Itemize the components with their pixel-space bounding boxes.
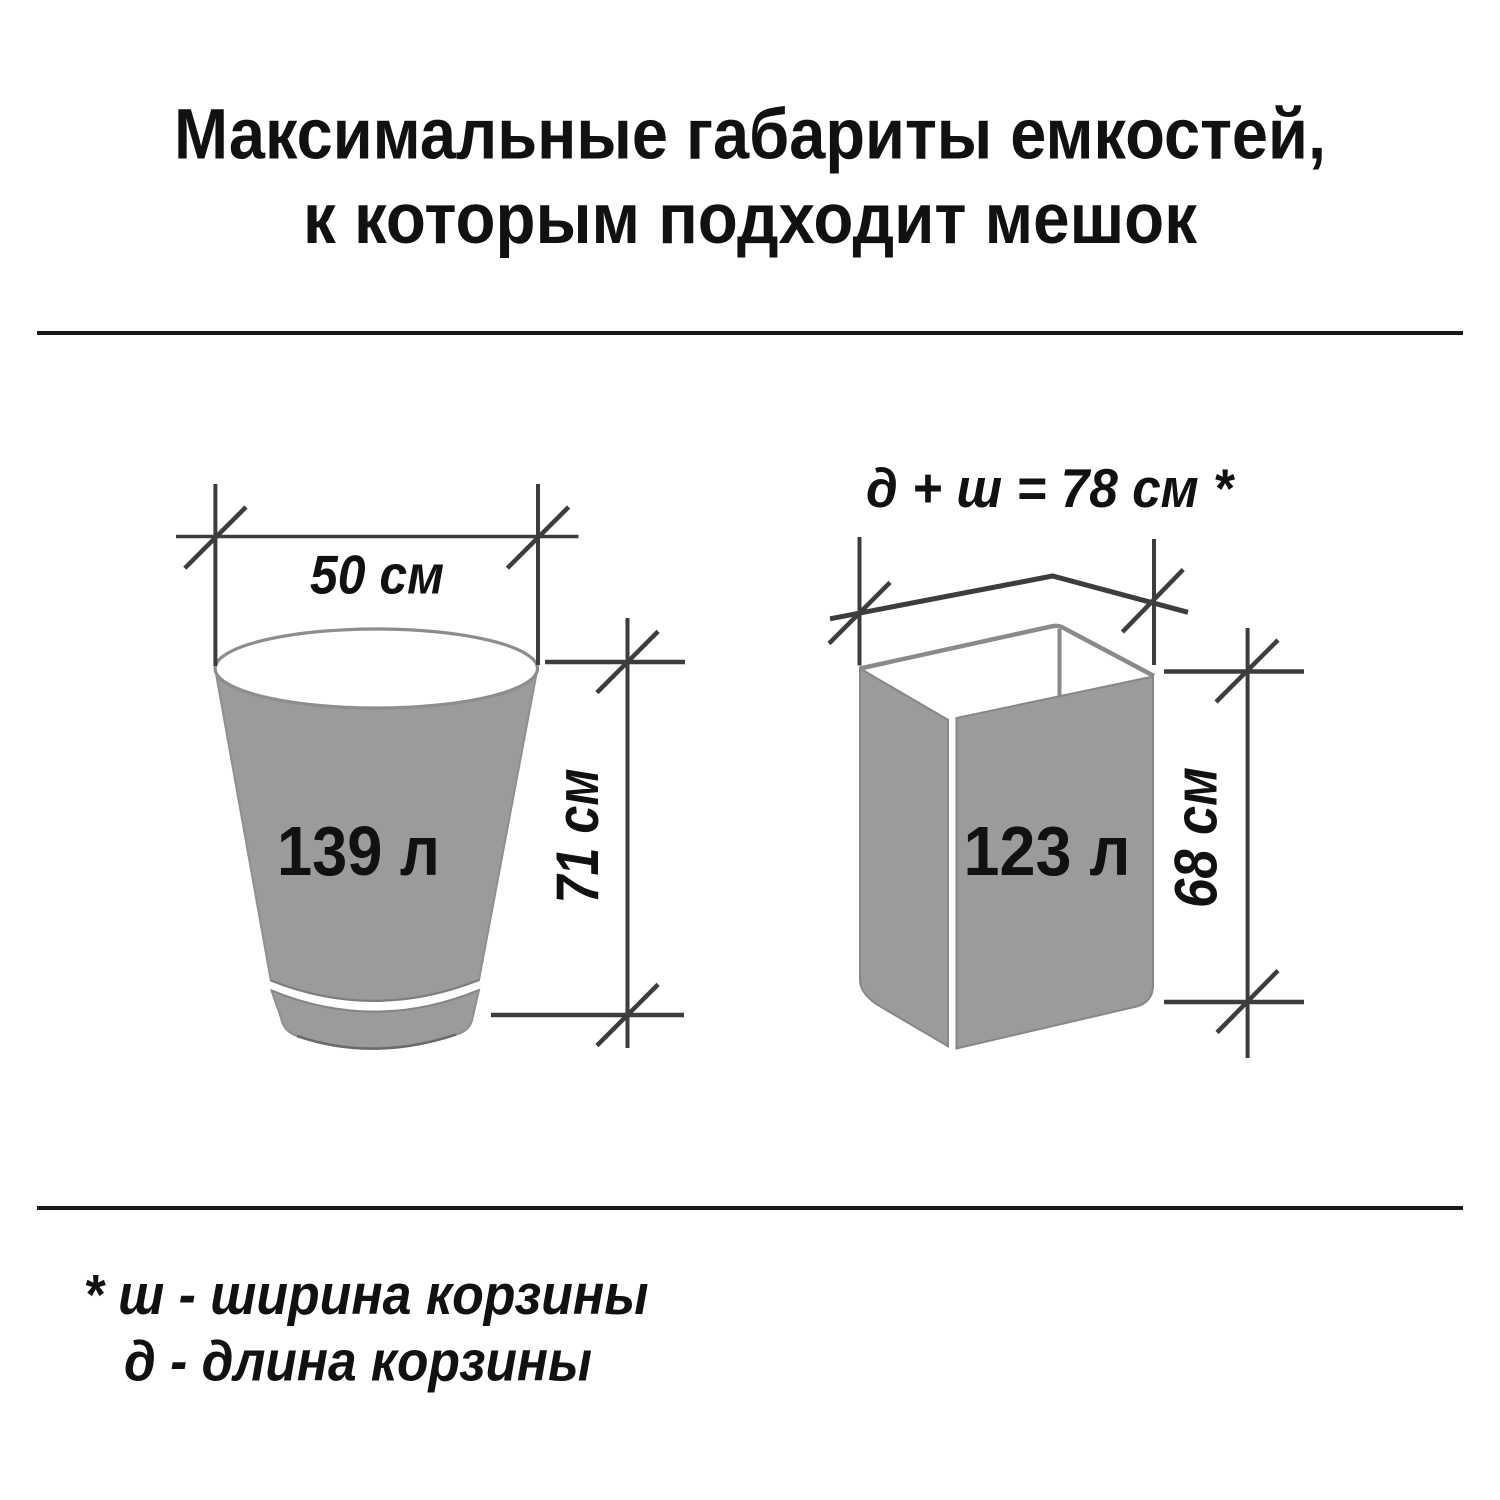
svg-text:71 см: 71 см <box>544 769 611 904</box>
svg-text:д - длина корзины: д - длина корзины <box>124 1330 592 1394</box>
svg-text:д + ш = 78 см *: д + ш = 78 см * <box>866 457 1235 519</box>
svg-text:123 л: 123 л <box>964 812 1131 890</box>
svg-text:к которым подходит мешок: к которым подходит мешок <box>303 180 1197 259</box>
svg-text:Максимальные габариты емкостей: Максимальные габариты емкостей, <box>174 96 1326 175</box>
svg-text:50 см: 50 см <box>310 543 444 605</box>
svg-text:139 л: 139 л <box>277 812 440 890</box>
svg-text:* ш - ширина корзины: * ш - ширина корзины <box>84 1263 649 1327</box>
svg-text:68 см: 68 см <box>1163 767 1230 908</box>
